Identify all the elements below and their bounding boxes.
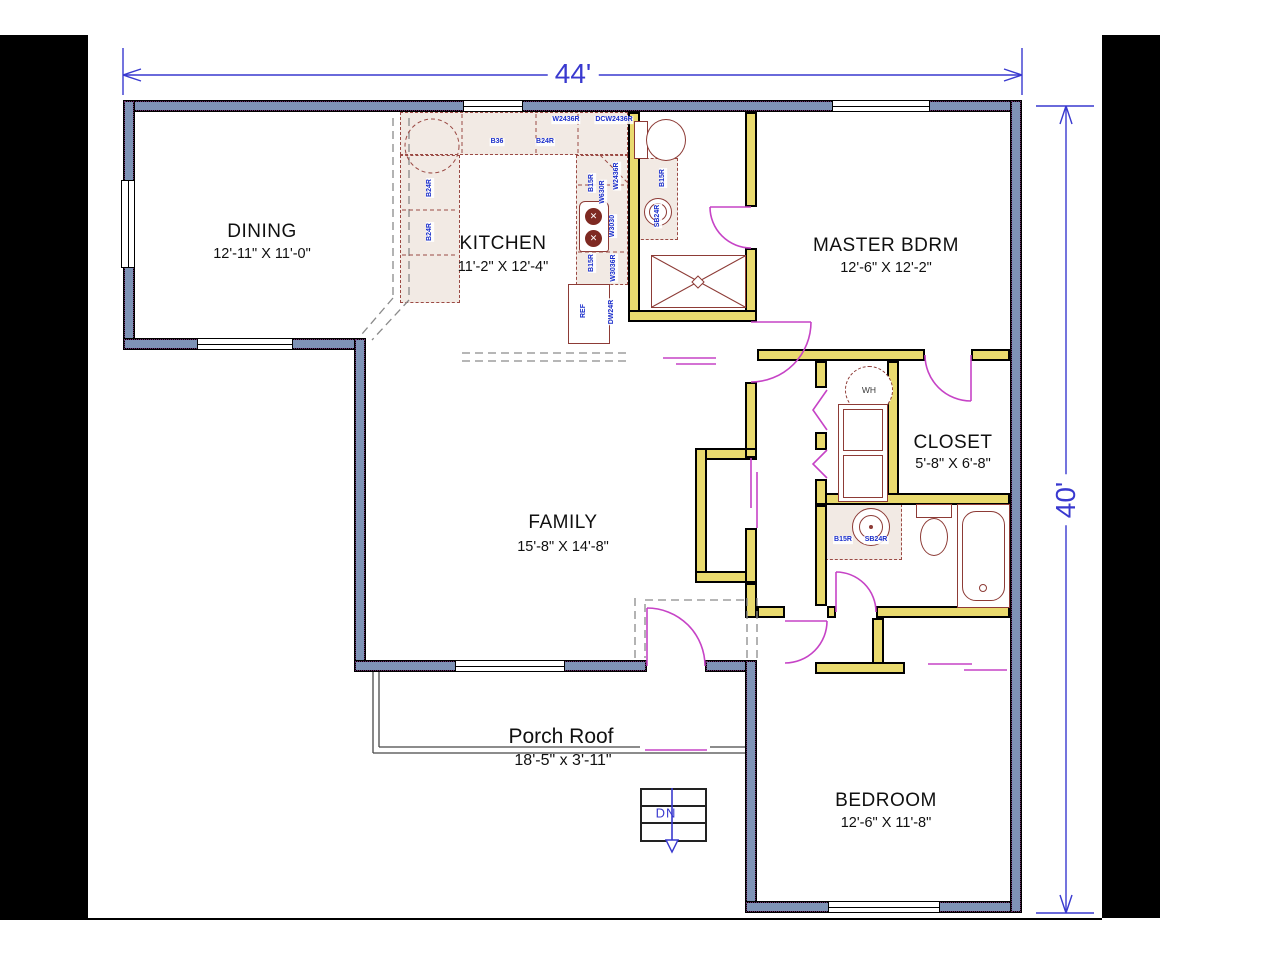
cabinet-label: B24R <box>426 178 434 198</box>
cabinet-label: DCW2436R <box>594 116 633 124</box>
shower-icon <box>651 255 746 308</box>
cabinet-label: B15R <box>588 173 596 193</box>
door-arc-bedroom <box>785 621 827 663</box>
bottom-border-line <box>0 918 1102 920</box>
interior-wall-hall-west-upper <box>745 382 757 452</box>
interior-wall-door-jamb <box>827 606 836 618</box>
cabinet-label: W3030 <box>609 214 617 238</box>
bathtub-drain-icon <box>979 584 987 592</box>
right-matte <box>1102 35 1160 918</box>
interior-wall-bath-east-upper <box>745 112 757 207</box>
sink-drain-icon <box>869 525 873 529</box>
range-burner-icon: ✕ <box>585 230 602 247</box>
dimension-arrow-down <box>1060 895 1072 913</box>
cabinet-label: B24R <box>426 222 434 242</box>
dryer-icon <box>843 455 883 498</box>
stairs-down-label: DN <box>656 806 677 821</box>
washer-icon <box>843 409 883 451</box>
room-label-master-bedroom: MASTER BDRM <box>813 235 959 257</box>
stair-tread-line <box>642 822 705 824</box>
appliance-label-refrigerator: REF <box>580 303 588 319</box>
room-label-dining: DINING <box>227 221 297 243</box>
interior-wall-hall-west-lower <box>745 583 757 618</box>
interior-wall-master-south-b <box>971 349 1010 361</box>
interior-wall-bedroom-closet-divider <box>872 618 884 664</box>
water-heater-label: WH <box>862 385 876 395</box>
dashed-opening-dining-corner <box>372 300 409 340</box>
dashed-opening-hall-west <box>635 598 645 658</box>
cabinet-label: SB24R <box>654 204 662 229</box>
interior-wall-bath-south <box>628 310 757 322</box>
interior-wall-hall-stub-a <box>745 448 757 458</box>
interior-wall-bedroom-north-stub <box>757 606 785 618</box>
window-master-top <box>832 100 930 112</box>
exterior-wall-family-west <box>354 338 366 672</box>
interior-wall-laundry-west-stub2 <box>815 432 827 450</box>
bifold-door-laundry-upper <box>813 390 827 430</box>
cabinet-label: W2436R <box>613 161 621 190</box>
door-arc-front-entry <box>647 608 705 666</box>
room-label-kitchen: KITCHEN <box>460 233 547 255</box>
cabinet-label: SB24R <box>864 536 889 544</box>
cabinet-label: B36 <box>490 138 505 146</box>
exterior-wall-bedroom-west <box>745 660 757 913</box>
cabinet-label: DW24R <box>608 299 616 326</box>
room-size-bedroom: 12'-6" X 11'-8" <box>841 815 932 831</box>
interior-wall-hall-stub-b <box>745 528 757 583</box>
interior-wall-laundry-west-stub3 <box>815 479 827 505</box>
dimension-arrow-up <box>1060 106 1072 124</box>
cabinet-label: W3036R <box>610 253 618 282</box>
room-label-family: FAMILY <box>528 512 597 534</box>
dimension-arrow-right <box>1004 69 1022 81</box>
window-dining-left <box>121 180 135 268</box>
dashed-opening-kitchen-family <box>462 353 628 361</box>
room-size-dining: 12'-11" X 11'-0" <box>213 246 311 262</box>
cabinet-label: W630R <box>599 179 607 204</box>
porch-roof-size: 18'-5" x 3'-11" <box>514 752 611 770</box>
interior-wall-laundry-west-stub1 <box>815 361 827 388</box>
cabinet-label: B15R <box>833 536 853 544</box>
refrigerator-icon <box>568 284 610 344</box>
pocket-door-hall <box>663 358 716 364</box>
porch-roof-label: Porch Roof <box>508 725 613 749</box>
interior-wall-master-bath-west <box>815 505 827 606</box>
window-bedroom-bottom <box>828 901 940 913</box>
bifold-door-laundry-lower <box>813 450 827 478</box>
cabinet-label: B15R <box>588 253 596 273</box>
toilet-bowl-icon <box>920 518 948 556</box>
room-size-master-bedroom: 12'-6" X 12'-2" <box>840 260 932 276</box>
window-family-bottom <box>455 660 565 672</box>
toilet-tank-icon <box>916 504 952 518</box>
cabinet-label: B15R <box>659 168 667 188</box>
dashed-opening-dining-corner <box>362 298 393 334</box>
floor-plan-canvas: ✕ ✕ WH <box>0 0 1280 975</box>
dimension-label-width: 44' <box>548 58 599 90</box>
door-arc-closet <box>925 355 971 401</box>
cabinet-label: B24R <box>535 138 555 146</box>
dimension-arrow-left <box>123 69 141 81</box>
left-matte <box>0 35 88 918</box>
window-dining-bottom <box>197 338 293 350</box>
room-size-kitchen: 11'-2" X 12'-4" <box>458 259 549 275</box>
cabinet-label: W2436R <box>551 116 580 124</box>
interior-wall-family-closet-west <box>695 448 707 583</box>
door-arc-hall-bath <box>710 207 751 248</box>
room-size-family: 15'-8" X 14'-8" <box>517 539 609 555</box>
sliding-door-bedroom-closet <box>928 664 1007 670</box>
interior-wall-master-south-a <box>757 349 925 361</box>
range-burner-icon: ✕ <box>585 208 602 225</box>
door-arc-master-bath <box>836 572 876 612</box>
room-size-closet: 5'-8" X 6'-8" <box>915 456 990 472</box>
room-label-bedroom: BEDROOM <box>835 790 937 812</box>
exterior-wall-right <box>1010 100 1022 913</box>
window-kitchen-top <box>463 100 523 112</box>
dimension-label-height: 40' <box>1050 475 1082 526</box>
room-label-closet: CLOSET <box>913 432 992 454</box>
interior-wall-bedroom-closet-south <box>815 662 905 674</box>
sliding-door-family-closet <box>751 458 757 528</box>
toilet-bowl-icon <box>646 119 686 161</box>
